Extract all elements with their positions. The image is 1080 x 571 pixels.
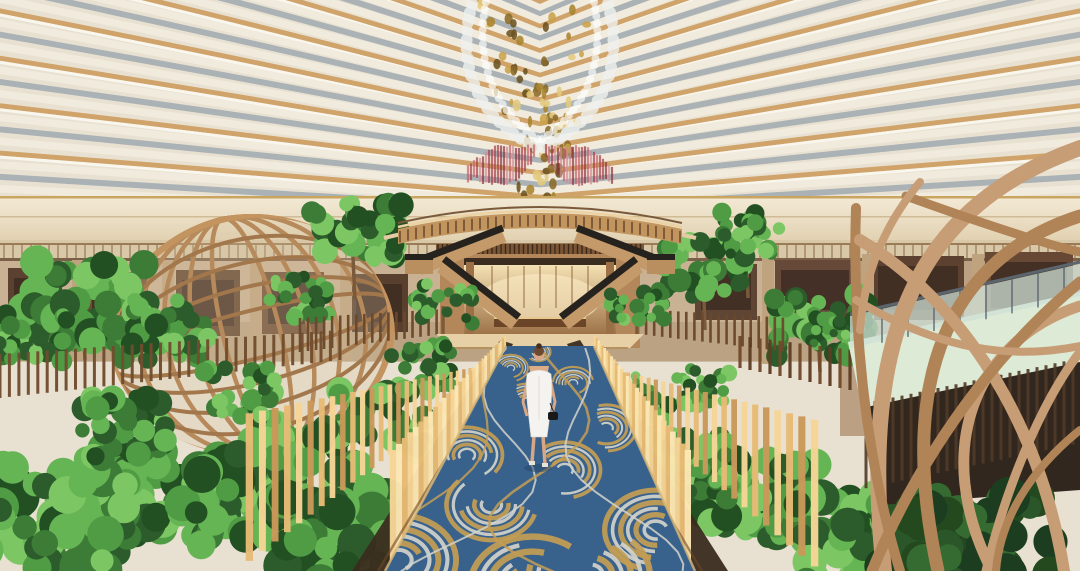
atrium-scene-svg (0, 0, 1080, 571)
hair-bun (536, 343, 542, 349)
leg-right (543, 436, 545, 464)
heel-right (542, 463, 548, 467)
leg-left (532, 436, 534, 462)
hotel-atrium-photo (0, 0, 1080, 571)
handbag (548, 412, 558, 420)
heel-left (529, 461, 535, 465)
